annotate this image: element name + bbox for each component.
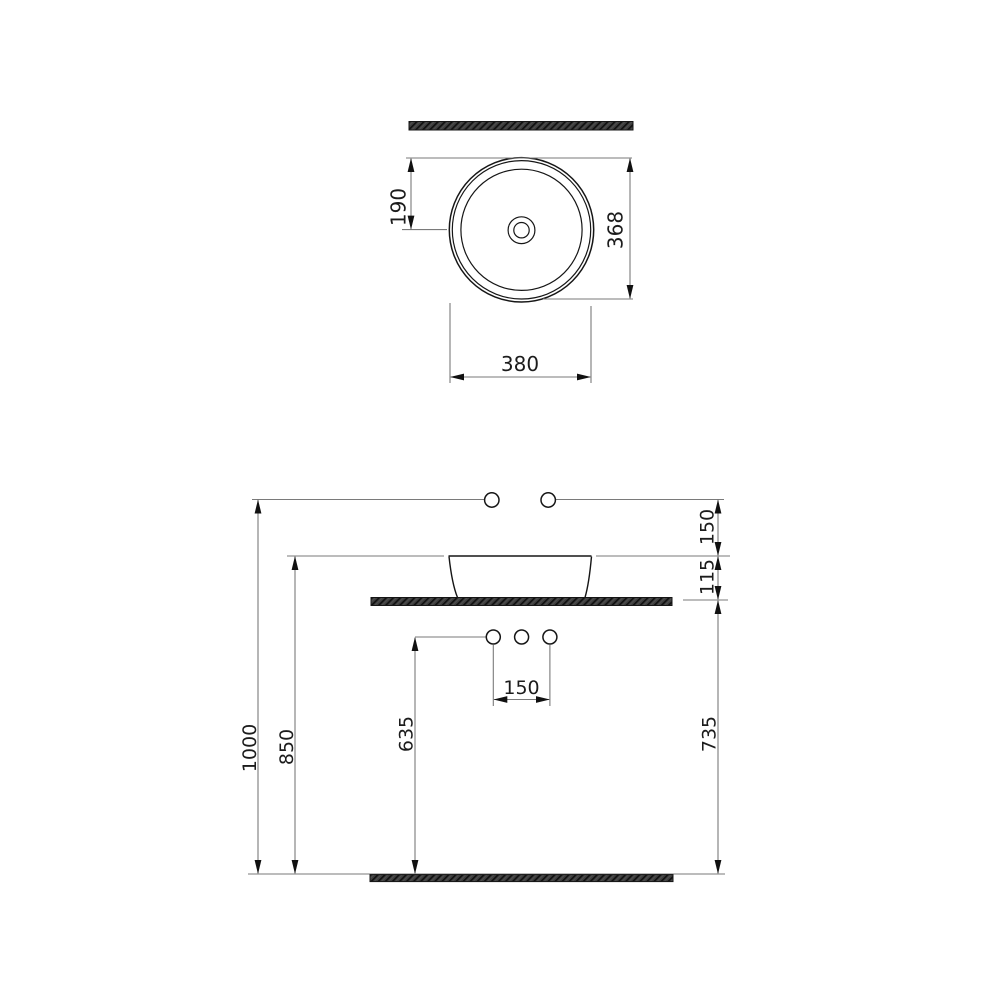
drain-inner-circle [514,223,529,238]
dim-label-rim-to-center: 190 [387,188,411,226]
dim-label-rim-above-counter: 115 [697,559,719,595]
front-view: 150 1000 850 635 150 115 735 [239,493,730,882]
dim-label-width: 380 [501,352,539,376]
basin-profile-right-side [585,557,592,598]
basin-rim-inner-edge-circle [452,161,590,299]
technical-drawing: 190 368 380 150 1000 [0,0,1000,1000]
fitting-hole-circle-center [515,630,529,644]
basin-outer-rim-circle [449,158,593,302]
drain-outer-circle [508,217,535,244]
dim-label-supply-above-rim: 150 [697,509,719,545]
dim-label-depth: 368 [604,211,628,249]
floor-section-bar [370,875,673,882]
dim-label-counter-height: 735 [699,716,721,752]
fitting-hole-circle-right [543,630,557,644]
top-view: 190 368 380 [387,122,634,384]
fitting-hole-circle-left [486,630,500,644]
countertop-section-bar [371,598,672,606]
dim-label-hole-spacing: 150 [503,677,539,699]
dim-label-supply-height: 1000 [239,724,261,772]
water-supply-circle-right [541,493,555,507]
basin-bowl-circle [461,169,582,290]
drawing-page: 190 368 380 150 1000 [0,0,1000,1000]
wall-section-bar [409,122,633,131]
dim-label-drain-height: 635 [396,716,418,752]
dim-label-rim-height: 850 [276,729,298,765]
water-supply-circle-left [485,493,499,507]
basin-profile-left-side [449,557,458,598]
